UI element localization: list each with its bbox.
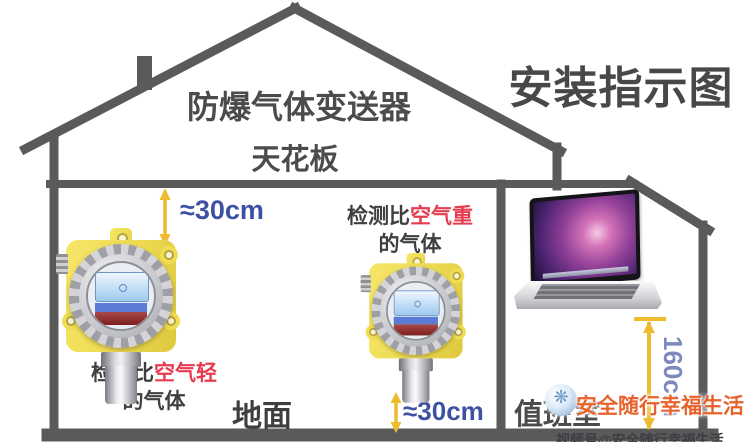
watermark-logo-icon: ❋ <box>545 384 577 416</box>
watermark-text: 安全随行幸福生活 <box>576 390 744 420</box>
detector-cable-gland <box>361 275 371 292</box>
detector-red-band <box>394 324 438 335</box>
detector-window <box>386 281 446 341</box>
laptop <box>514 194 662 314</box>
note-heavier-highlight: 空气重 <box>410 205 473 228</box>
detector-sensor-probe <box>402 370 429 402</box>
detector-probe-sleeve <box>101 352 141 367</box>
page-title: 安装指示图 <box>496 52 746 116</box>
detector-bezel <box>69 244 173 348</box>
detector-red-band <box>95 312 147 325</box>
laptop-keyboard <box>533 284 639 299</box>
detector-blue-band <box>95 303 147 312</box>
detector-mount-ear <box>449 268 464 283</box>
detector-lcd-display <box>394 290 440 316</box>
detector-cable-gland <box>56 254 68 274</box>
watermark-logo-glyph: ❋ <box>545 387 577 408</box>
laptop-wallpaper <box>533 193 636 282</box>
detector-window <box>86 261 156 331</box>
detector-bezel <box>372 267 460 355</box>
clearance-top-label: ≈30cm <box>180 195 264 226</box>
detector-lcd-display <box>95 272 149 302</box>
ceiling-label: 天花板 <box>238 136 352 178</box>
left-gas-detector <box>60 228 182 404</box>
note-heavier-than-air: 检测比空气重 的气体 <box>334 203 486 259</box>
detector-blue-band <box>394 317 438 325</box>
note-heavier-prefix: 检测比 <box>347 205 410 228</box>
device-title-label: 防爆气体变送器 <box>164 82 434 128</box>
detector-sensor-probe <box>105 366 137 404</box>
middle-gas-detector <box>364 253 468 403</box>
detector-probe-sleeve <box>399 358 433 371</box>
detector-mount-ear <box>160 246 178 264</box>
installation-diagram: 视频号@安全随行幸福生活 <box>0 0 746 442</box>
laptop-screen <box>529 189 640 289</box>
laptop-dock-bar <box>543 266 628 278</box>
ground-label: 地面 <box>232 391 324 435</box>
laptop-base <box>514 281 662 309</box>
